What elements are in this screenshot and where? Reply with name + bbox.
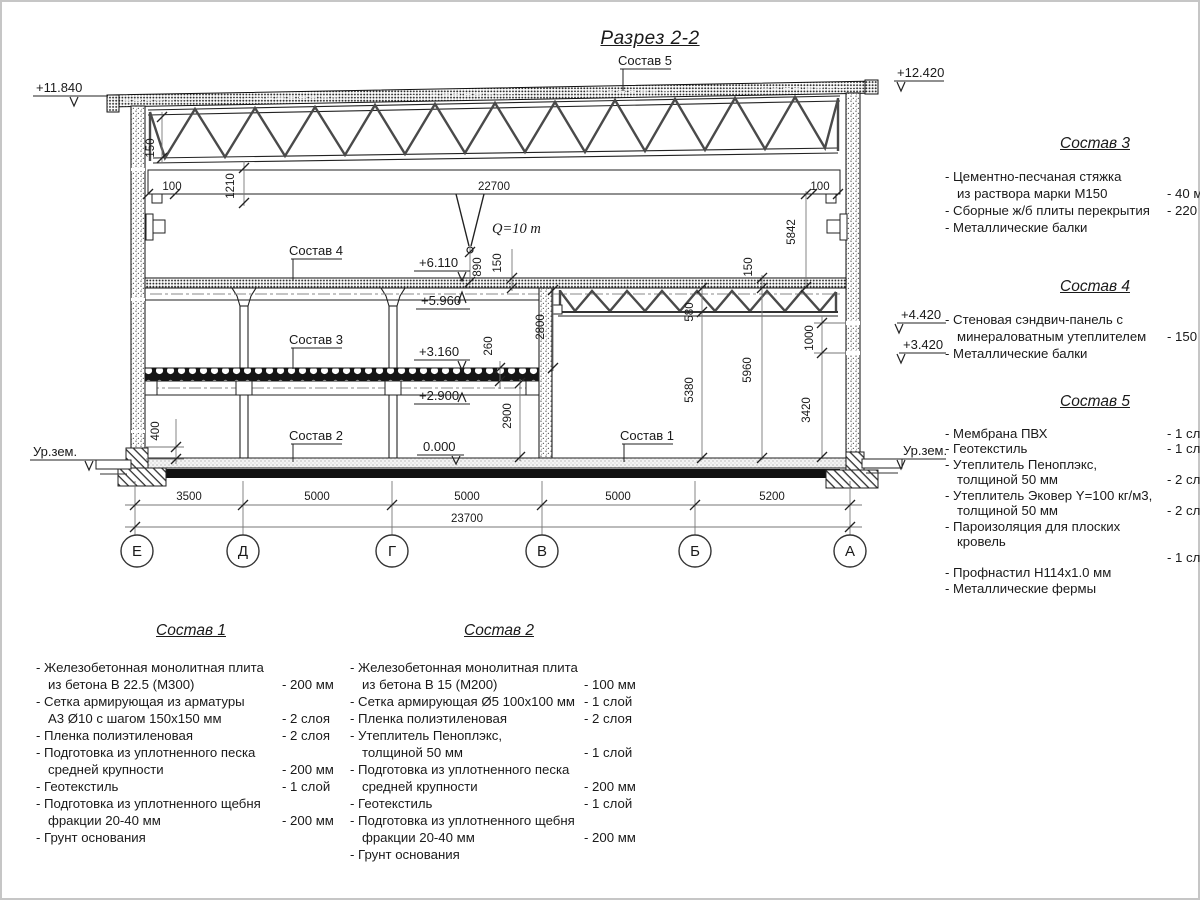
list-item: - Пароизоляция для плоских кровель [945,519,1200,550]
list-title: Состав 4 [945,278,1200,295]
dim-label: 3420 [801,397,813,423]
dim-label: 150 [145,138,157,157]
dim-label: 580 [684,302,696,321]
list-item-value: - 1 слой [1167,441,1200,457]
elevation-arrows [70,82,905,470]
dim-label: 150 [492,253,504,272]
material-list-2: Состав 2 - Железобетонная монолитная пли… [350,622,648,863]
list-item: - Подготовка из уплотненного песка средн… [36,744,346,778]
list-item: - Утеплитель Пеноплэкс, толщиной 50 мм- … [945,457,1200,488]
list-item-value: - 2 слоя [1167,472,1200,488]
dim-label: 5842 [786,219,798,245]
drawing-texts: +11.840 +12.420 +4.420 +3.420 Ур.зем. Ур… [33,53,947,560]
list-item: - Железобетонная монолитная плита из бет… [350,659,648,693]
list-item-name: - Геотекстиль [945,441,1167,457]
list-item-name: - Мембрана ПВХ [945,426,1167,442]
list-item: - Пленка полиэтиленовая- 2 слоя [350,710,648,727]
list-item-value: - 200 мм [282,812,346,829]
list-item: - Утеплитель Эковер Y=100 кг/м3, толщино… [945,488,1200,519]
ground-level-label: Ур.зем. [903,443,947,458]
list-item-value: - 220 мм [1167,202,1200,219]
list-item: - Подготовка из уплотненного щебня фракц… [350,812,648,846]
list-item-name: - Пленка полиэтиленовая [36,727,282,744]
list-item-name: - Утеплитель Пеноплэкс, толщиной 50 мм [350,727,584,761]
dim-label: 100 [810,181,829,193]
list-item-value: - 1 слой [584,795,648,812]
list-item-name: - Профнастил Н114х1.0 мм [945,565,1167,581]
dim-label: 5960 [742,357,754,383]
list-item-name: - Железобетонная монолитная плита из бет… [36,659,282,693]
list-item: - Грунт основания [36,829,346,846]
dim-label: 1000 [804,325,816,351]
dim-label: 2800 [535,314,547,340]
callout-sostav5: Состав 5 [618,53,672,68]
axis-letter: А [845,543,855,560]
axis-letter: В [537,543,547,560]
list-title: Состав 2 [350,622,648,639]
list-item-value: - 2 слоя [282,727,346,744]
list-item-value: - 100 мм [584,676,648,693]
callout-sostav3: Состав 3 [289,332,343,347]
list-item: - Геотекстиль- 1 слой [945,441,1200,457]
list-item-value: - 200 мм [584,778,648,795]
list-item-value: - 1 слой [1167,550,1200,566]
list-item: - Металлические балки [945,345,1200,362]
dim-label: 890 [472,257,484,276]
dim-label: 5200 [759,491,785,503]
elevation-label: +4.420 [901,307,941,322]
list-item-name: - Металлические балки [945,219,1167,236]
list-item: - Утеплитель Пеноплэкс, толщиной 50 мм- … [350,727,648,761]
list-item-name: - Подготовка из уплотненного щебня фракц… [350,812,584,846]
axis-letter: Д [238,543,248,560]
dim-label: 400 [150,421,162,440]
list-item-name: - Сетка армирующая Ø5 100х100 мм [350,693,584,710]
list-item-value: - 150 мм [1167,328,1200,345]
list-item-name: - Подготовка из уплотненного песка средн… [350,761,584,795]
list-item-name: - Цементно-песчаная стяжка из раствора м… [945,168,1167,202]
dim-label: 5000 [304,491,330,503]
elevation-label: +3.160 [419,344,459,359]
list-item-value: - 40 мм [1167,185,1200,202]
list-item-name: - Металлические фермы [945,581,1167,597]
list-item-name: - Утеплитель Пеноплэкс, толщиной 50 мм [945,457,1167,488]
dim-label: 5000 [454,491,480,503]
dim-label: 100 [162,181,181,193]
material-list-5: Состав 5 - Мембрана ПВХ- 1 слой - Геотек… [945,394,1200,596]
elevation-label: +12.420 [897,65,944,80]
elevation-label: 0.000 [423,439,456,454]
dim-label: 3500 [176,491,202,503]
list-item: - Мембрана ПВХ- 1 слой [945,426,1200,442]
list-item-name: - Грунт основания [350,846,584,863]
list-item-name: - Геотекстиль [36,778,282,795]
list-item-name: - Утеплитель Эковер Y=100 кг/м3, толщино… [945,488,1167,519]
list-item-value: - 200 мм [584,829,648,846]
callout-sostav2: Состав 2 [289,428,343,443]
list-item: - 1 слой [945,550,1200,566]
list-item: - Сетка армирующая Ø5 100х100 мм- 1 слой [350,693,648,710]
list-title: Состав 1 [36,622,346,639]
elevation-label: +5.960 [421,293,461,308]
list-item-name: - Металлические балки [945,345,1167,362]
list-item: - Грунт основания [350,846,648,863]
list-item-name: - Подготовка из уплотненного песка средн… [36,744,282,778]
list-item-value: - 1 слой [282,778,346,795]
list-item-name: - Геотекстиль [350,795,584,812]
list-item-name: - Железобетонная монолитная плита из бет… [350,659,584,693]
list-item: - Железобетонная монолитная плита из бет… [36,659,346,693]
dim-label: 5380 [684,377,696,403]
material-list-3: Состав 3 - Цементно-песчаная стяжка из р… [945,135,1200,236]
axis-letter: Е [132,543,142,560]
crane-hook [456,194,484,246]
list-title: Состав 3 [945,135,1200,152]
list-item-value: - 1 слой [584,693,648,710]
list-item-value: - 1 слой [1167,426,1200,442]
axis-letter: Б [690,543,700,560]
axis-bubbles [121,535,866,567]
dim-label: 22700 [478,181,510,193]
dim-label: 2900 [502,403,514,429]
dim-label: 260 [483,336,495,355]
elevation-label: +2.900 [419,388,459,403]
list-item-value: - 200 мм [282,761,346,778]
list-item-name: - Пленка полиэтиленовая [350,710,584,727]
list-item-name: - Стеновая сэндвич-панель с минераловатн… [945,311,1167,345]
dim-label: 150 [743,257,755,276]
list-item-name: - Грунт основания [36,829,282,846]
list-item-value: - 2 слоя [1167,503,1200,519]
elevation-label: +3.420 [903,337,943,352]
list-title: Состав 5 [945,394,1200,410]
list-item-name: - Сборные ж/б плиты перекрытия [945,202,1167,219]
list-item: - Стеновая сэндвич-панель с минераловатн… [945,311,1200,345]
list-item: - Профнастил Н114х1.0 мм [945,565,1200,581]
list-item: - Геотекстиль- 1 слой [36,778,346,795]
dim-total-label: 23700 [451,513,483,525]
dim-label: 5000 [605,491,631,503]
callout-sostav1: Состав 1 [620,428,674,443]
list-item: - Цементно-песчаная стяжка из раствора м… [945,168,1200,202]
crane-capacity-label: Q=10 т [492,221,541,237]
list-item: - Металлические фермы [945,581,1200,597]
list-item: - Подготовка из уплотненного щебня фракц… [36,795,346,829]
ground-level-label: Ур.зем. [33,444,77,459]
list-item: - Пленка полиэтиленовая- 2 слоя [36,727,346,744]
dim-label: 1210 [225,173,237,199]
list-item: - Сборные ж/б плиты перекрытия- 220 мм [945,202,1200,219]
list-item: - Геотекстиль- 1 слой [350,795,648,812]
list-item-value: - 1 слой [584,744,648,761]
list-item: - Подготовка из уплотненного песка средн… [350,761,648,795]
list-item-value: - 2 слоя [584,710,648,727]
list-item-name: - Подготовка из уплотненного щебня фракц… [36,795,282,829]
list-item-value: - 200 мм [282,676,346,693]
elevation-label: +6.110 [419,255,458,270]
elevation-label: +11.840 [36,80,82,95]
list-item-name: - Сетка армирующая из арматуры А3 Ø10 с … [36,693,282,727]
list-item: - Сетка армирующая из арматуры А3 Ø10 с … [36,693,346,727]
building-structure [96,80,902,488]
partition-wall [539,288,552,458]
list-item-value: - 2 слоя [282,710,346,727]
list-item: - Металлические балки [945,219,1200,236]
callout-sostav4: Состав 4 [289,243,343,258]
material-list-1: Состав 1 - Железобетонная монолитная пли… [36,622,346,846]
axis-letter: Г [388,543,396,560]
material-list-4: Состав 4 - Стеновая сэндвич-панель с мин… [945,278,1200,362]
list-item-name: - Пароизоляция для плоских кровель [945,519,1167,550]
